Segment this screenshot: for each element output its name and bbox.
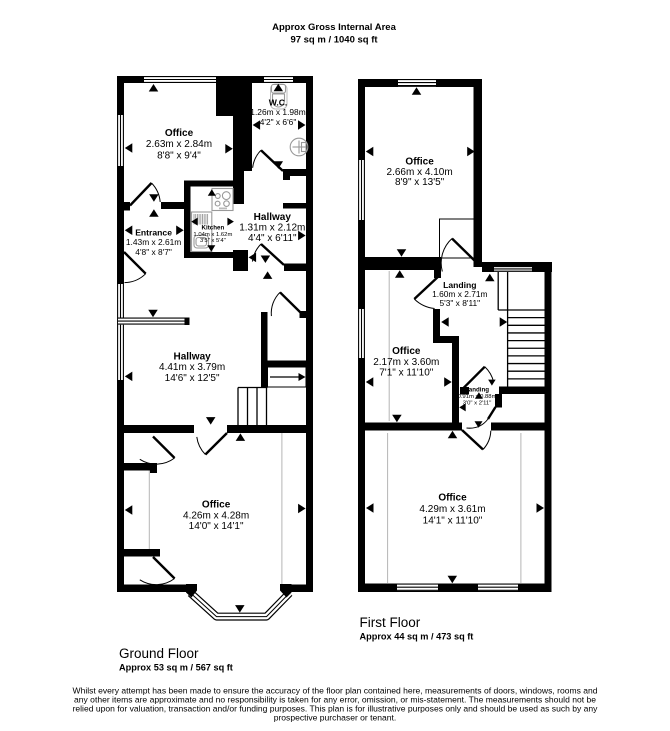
- svg-text:Ground Floor: Ground Floor: [119, 646, 199, 661]
- svg-text:2.66m x 4.10m: 2.66m x 4.10m: [387, 167, 453, 178]
- svg-text:8'8" x 9'4": 8'8" x 9'4": [157, 150, 201, 161]
- svg-text:Office: Office: [438, 492, 467, 503]
- svg-text:3'5" x 5'4": 3'5" x 5'4": [200, 238, 226, 244]
- svg-text:1.26m x 1.98m: 1.26m x 1.98m: [250, 107, 305, 117]
- svg-text:First Floor: First Floor: [360, 615, 421, 630]
- svg-text:1.04m x 1.62m: 1.04m x 1.62m: [193, 232, 232, 238]
- svg-text:1.31m x 2.12m: 1.31m x 2.12m: [239, 222, 305, 233]
- svg-text:Landing: Landing: [465, 386, 489, 393]
- svg-text:4.41m x 3.79m: 4.41m x 3.79m: [159, 362, 225, 373]
- svg-text:2.63m x 2.84m: 2.63m x 2.84m: [146, 139, 212, 150]
- svg-text:14'0" x 14'1": 14'0" x 14'1": [189, 521, 244, 532]
- svg-text:Hallway: Hallway: [173, 351, 211, 362]
- svg-text:4.29m x 3.61m: 4.29m x 3.61m: [419, 504, 485, 515]
- svg-text:4.26m x 4.28m: 4.26m x 4.28m: [183, 510, 249, 521]
- svg-text:Office: Office: [202, 500, 231, 511]
- svg-text:1.43m x 2.61m: 1.43m x 2.61m: [126, 237, 181, 247]
- svg-text:prospective purchaser or tenan: prospective purchaser or tenant.: [274, 713, 397, 723]
- svg-text:Approx 44 sq m / 473 sq ft: Approx 44 sq m / 473 sq ft: [360, 632, 474, 642]
- svg-text:14'1" x 11'10": 14'1" x 11'10": [423, 516, 483, 527]
- svg-text:4'4" x 6'11": 4'4" x 6'11": [248, 233, 297, 244]
- svg-text:Approx Gross Internal Area: Approx Gross Internal Area: [272, 22, 396, 33]
- svg-text:3'0" x 2'11": 3'0" x 2'11": [463, 401, 492, 407]
- svg-text:7'1" x 11'10": 7'1" x 11'10": [379, 368, 434, 379]
- svg-text:4'2" x 6'6": 4'2" x 6'6": [260, 117, 297, 127]
- svg-text:Office: Office: [405, 156, 434, 167]
- svg-text:Office: Office: [165, 128, 194, 139]
- svg-text:97 sq m / 1040 sq ft: 97 sq m / 1040 sq ft: [290, 34, 378, 45]
- svg-text:14'6" x 12'5": 14'6" x 12'5": [165, 373, 220, 384]
- svg-text:Kitchen: Kitchen: [202, 225, 225, 232]
- svg-text:8'9" x 13'5": 8'9" x 13'5": [395, 177, 445, 188]
- svg-text:Office: Office: [392, 346, 421, 357]
- svg-text:Entrance: Entrance: [135, 227, 172, 237]
- svg-text:W.C.: W.C.: [269, 97, 288, 107]
- svg-text:0.91m x 0.88m: 0.91m x 0.88m: [458, 394, 497, 400]
- svg-text:5'3" x 8'11": 5'3" x 8'11": [439, 298, 480, 308]
- svg-text:Hallway: Hallway: [254, 212, 292, 223]
- svg-text:2.17m x 3.60m: 2.17m x 3.60m: [373, 357, 439, 368]
- svg-text:Approx 53 sq m / 567 sq ft: Approx 53 sq m / 567 sq ft: [119, 663, 233, 673]
- svg-text:4'8" x 8'7": 4'8" x 8'7": [135, 247, 172, 257]
